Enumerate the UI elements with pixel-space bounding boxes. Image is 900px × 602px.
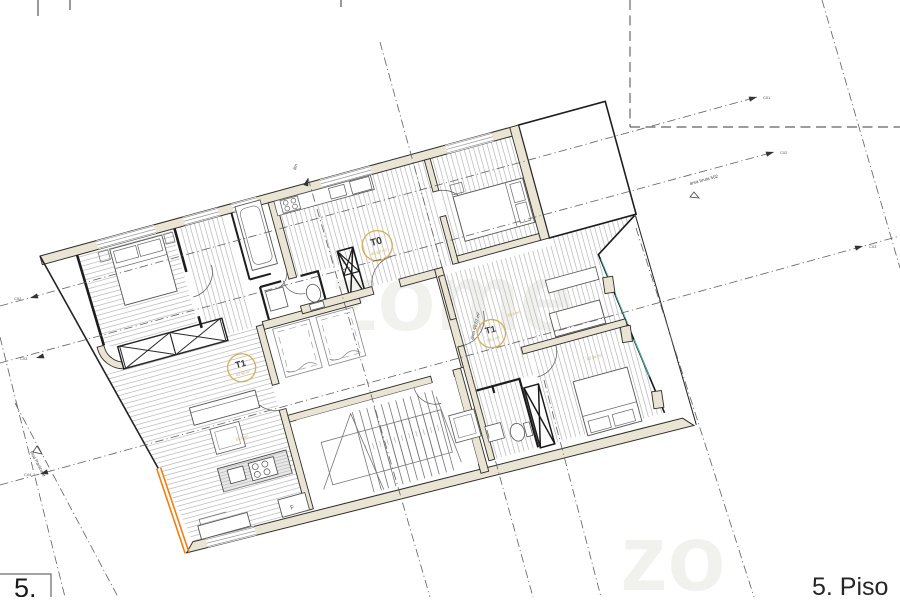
svg-text:5. Piso: 5. Piso	[812, 573, 888, 597]
svg-text:C03: C03	[20, 356, 28, 361]
svg-text:zo: zo	[620, 505, 726, 597]
svg-text:C02: C02	[14, 296, 22, 301]
svg-text:C02: C02	[780, 150, 788, 155]
svg-text:5.: 5.	[14, 573, 37, 597]
svg-text:C04: C04	[24, 472, 32, 477]
svg-text:C03: C03	[869, 244, 877, 249]
svg-text:C01: C01	[763, 95, 771, 100]
